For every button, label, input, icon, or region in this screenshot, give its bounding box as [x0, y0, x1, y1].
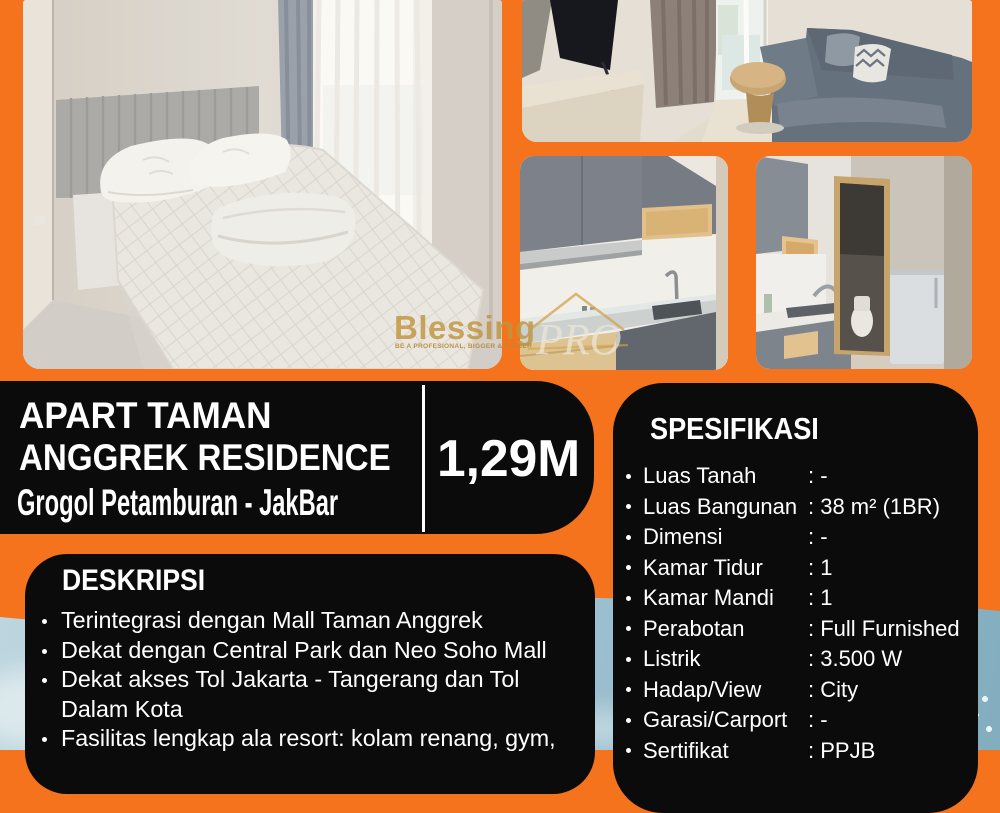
svg-text:PRO: PRO — [535, 315, 622, 364]
